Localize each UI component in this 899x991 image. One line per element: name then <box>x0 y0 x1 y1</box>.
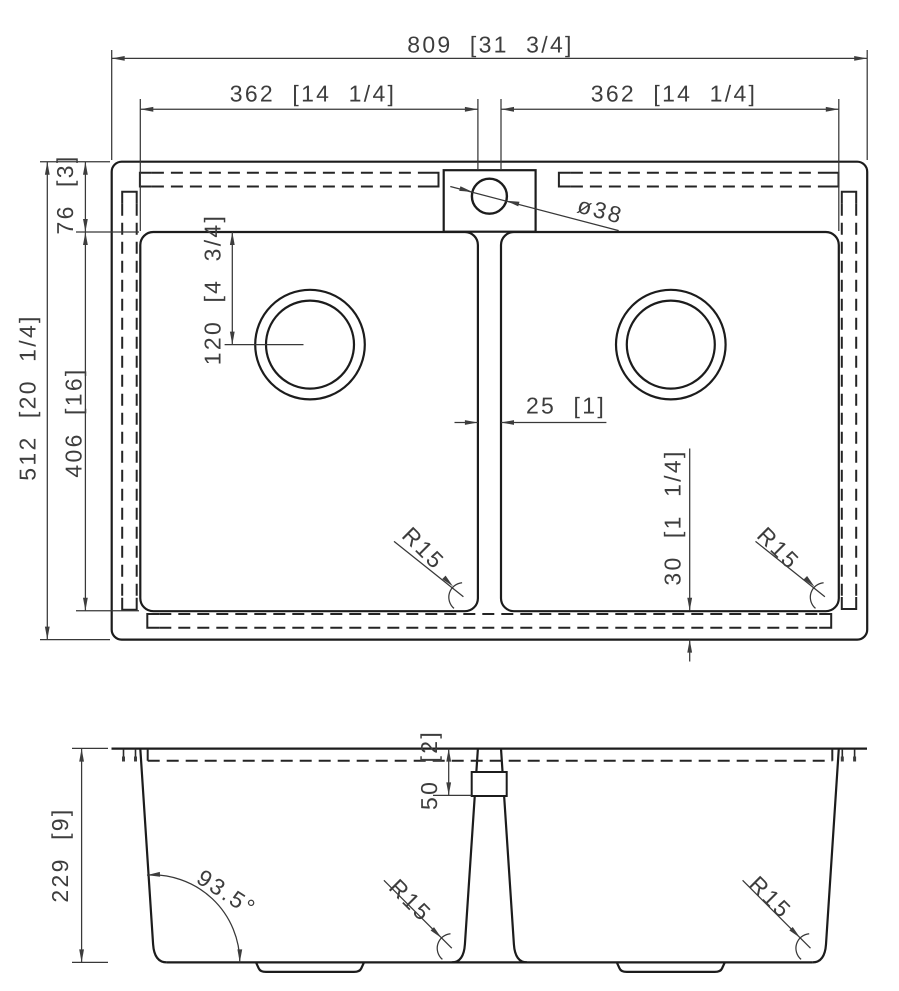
svg-text:809 [31 3/4]: 809 [31 3/4] <box>407 32 573 58</box>
svg-text:25 [1]: 25 [1] <box>526 393 606 419</box>
svg-text:229 [9]: 229 [9] <box>47 807 73 902</box>
svg-text:ø38: ø38 <box>575 192 627 229</box>
svg-text:362 [14 1/4]: 362 [14 1/4] <box>230 80 396 106</box>
svg-text:R15: R15 <box>397 522 450 575</box>
svg-text:R15: R15 <box>752 522 805 575</box>
svg-text:R15: R15 <box>744 871 797 924</box>
svg-text:512 [20 1/4]: 512 [20 1/4] <box>15 314 41 480</box>
svg-text:50 [2]: 50 [2] <box>416 730 442 810</box>
svg-text:R15: R15 <box>384 874 437 927</box>
svg-text:30 [1 1/4]: 30 [1 1/4] <box>660 449 686 585</box>
svg-text:120 [4 3/4]: 120 [4 3/4] <box>200 214 226 365</box>
svg-text:406 [16]: 406 [16] <box>61 367 87 477</box>
svg-text:76 [3]: 76 [3] <box>52 154 78 234</box>
svg-text:362 [14 1/4]: 362 [14 1/4] <box>591 80 757 106</box>
svg-text:93.5°: 93.5° <box>192 864 261 921</box>
